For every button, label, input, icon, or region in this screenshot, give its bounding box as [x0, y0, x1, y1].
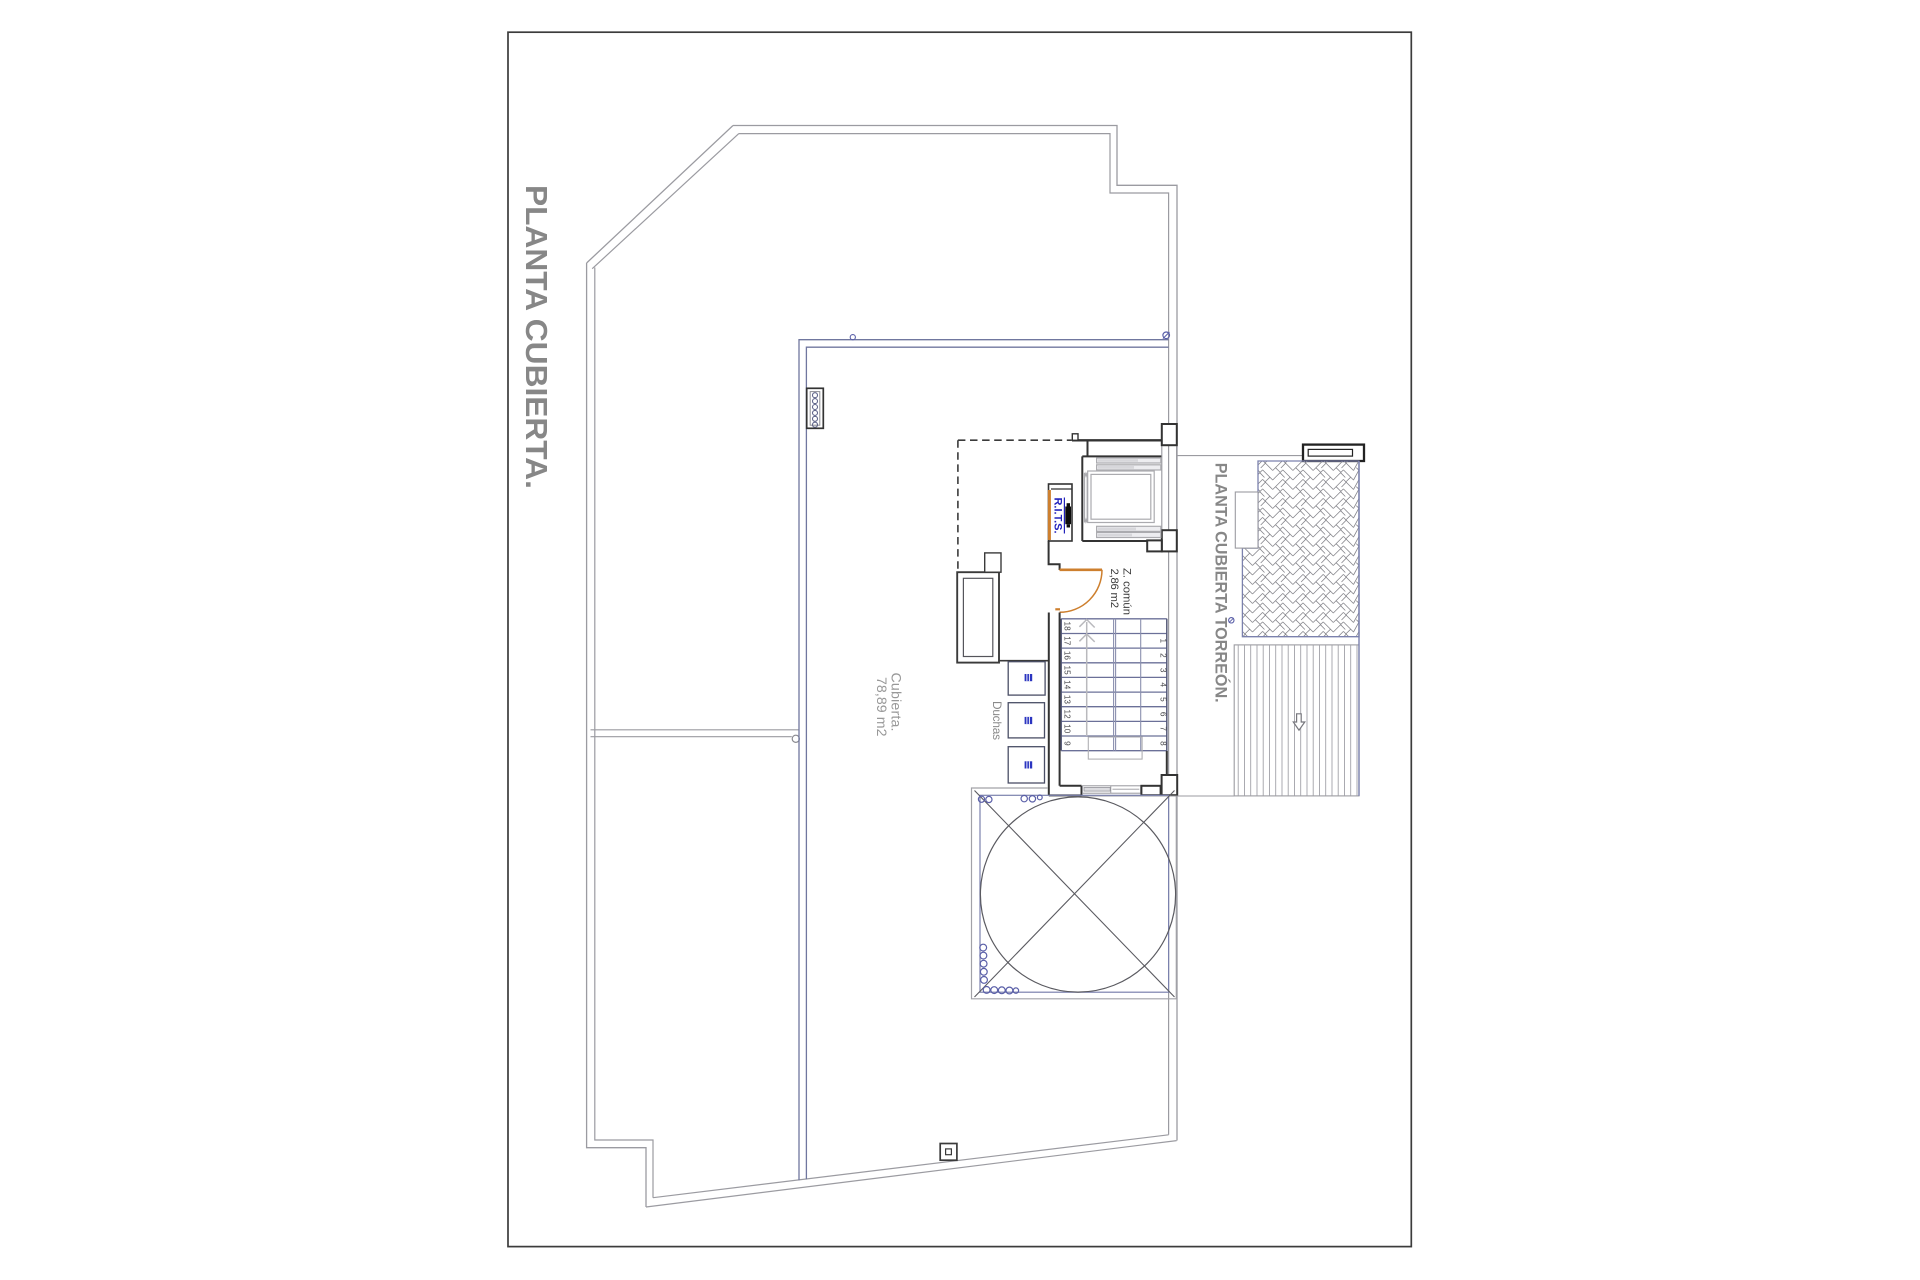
svg-text:5: 5 [1158, 697, 1167, 702]
svg-text:1: 1 [1158, 639, 1167, 644]
svg-text:17: 17 [1063, 636, 1072, 646]
svg-text:2,86 m2: 2,86 m2 [1108, 569, 1120, 609]
svg-text:6: 6 [1158, 712, 1167, 717]
svg-text:3: 3 [1158, 668, 1167, 673]
svg-text:9: 9 [1063, 741, 1072, 746]
svg-text:Duchas: Duchas [990, 701, 1004, 740]
svg-text:13: 13 [1063, 695, 1072, 705]
svg-text:2: 2 [1158, 653, 1167, 658]
svg-text:4: 4 [1158, 682, 1167, 687]
svg-text:R.I.T.S.: R.I.T.S. [1051, 498, 1063, 534]
svg-text:PLANTA CUBIERTA.: PLANTA CUBIERTA. [519, 185, 553, 489]
svg-text:PLANTA CUBIERTA TORREÓN.: PLANTA CUBIERTA TORREÓN. [1212, 463, 1231, 703]
svg-text:10: 10 [1063, 724, 1072, 734]
svg-text:8: 8 [1158, 741, 1167, 746]
svg-text:14: 14 [1063, 680, 1072, 690]
svg-text:18: 18 [1063, 622, 1072, 632]
svg-text:15: 15 [1063, 666, 1072, 676]
svg-text:16: 16 [1063, 651, 1072, 661]
svg-text:12: 12 [1063, 710, 1072, 720]
svg-text:78,89 m2: 78,89 m2 [873, 677, 889, 737]
svg-text:7: 7 [1158, 726, 1167, 731]
svg-text:Z. común: Z. común [1121, 568, 1133, 615]
